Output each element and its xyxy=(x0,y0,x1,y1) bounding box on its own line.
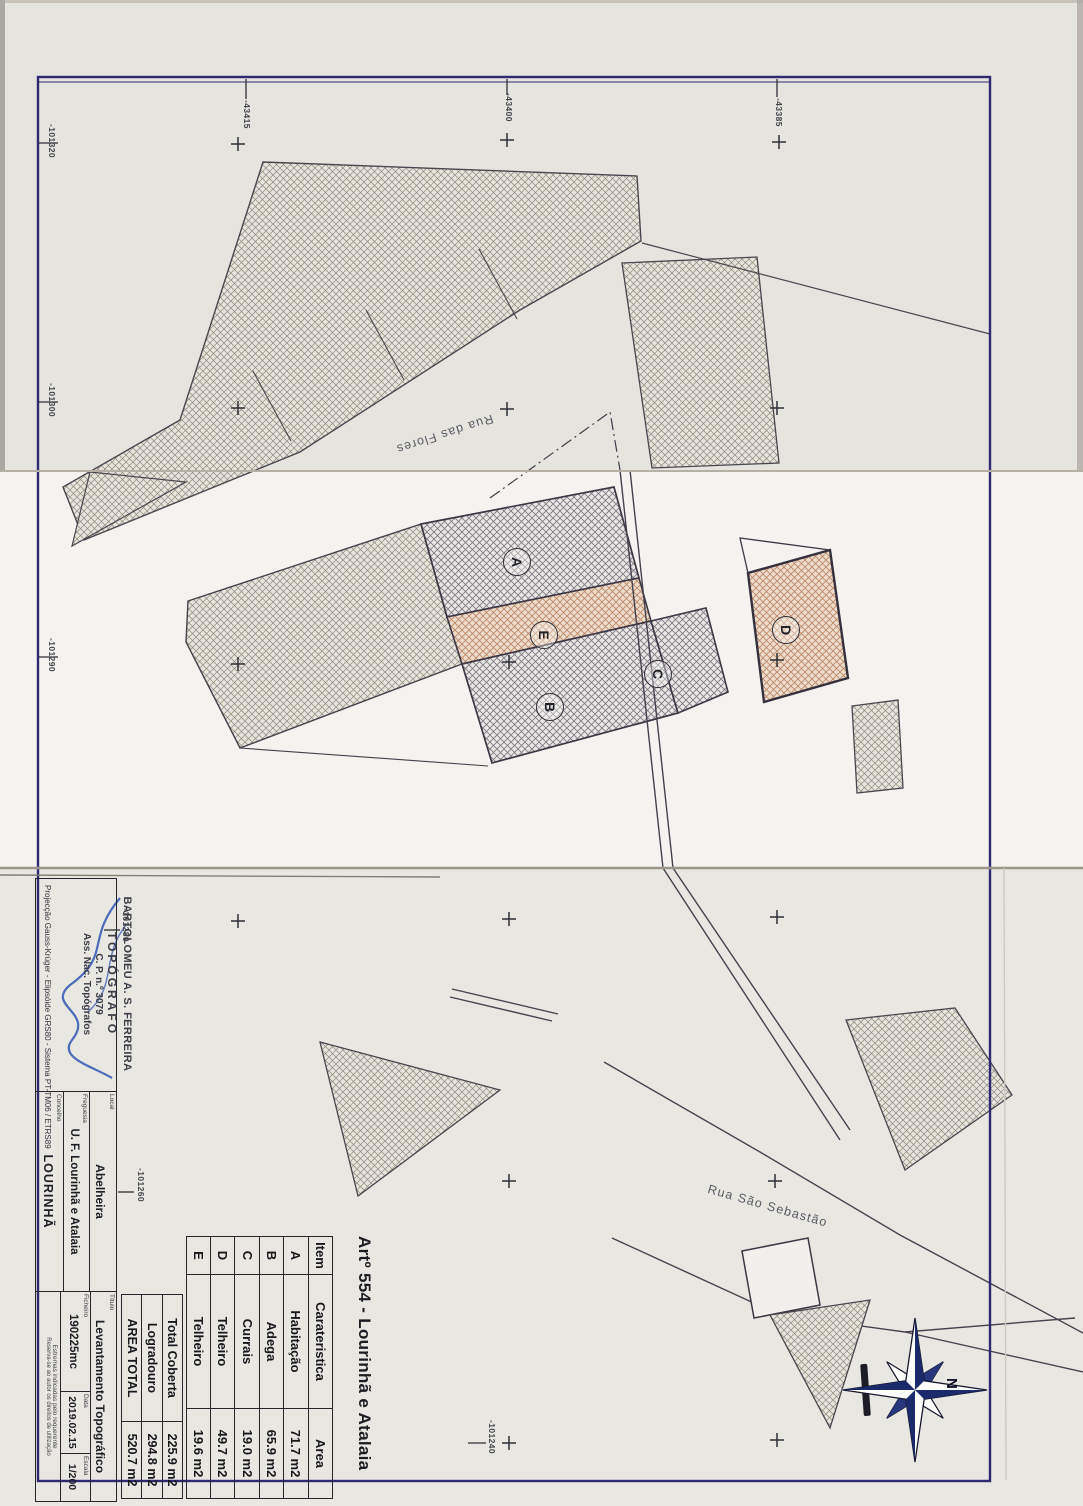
total-value: 520.7 m2 xyxy=(121,1422,141,1499)
titulo-label: Título xyxy=(108,1294,115,1310)
cell-item: D xyxy=(211,1237,235,1275)
location-section: Local Abelheira Freguesia U. F. Lourinhã… xyxy=(36,1091,116,1291)
cell-area: 65.9 m2 xyxy=(259,1409,283,1499)
concelho-value: LOURINHÃ xyxy=(41,1092,63,1291)
stamp-association: Ass. Nac. Topógrafos xyxy=(79,881,92,1087)
data-cell: Data 2019.02.15 xyxy=(61,1392,90,1454)
building-outlines xyxy=(421,487,903,793)
parcel-boundary-lower xyxy=(240,748,488,766)
cell-area: 71.7 m2 xyxy=(284,1409,308,1499)
building-label-A: A xyxy=(503,548,531,576)
building-label-D: D xyxy=(772,616,800,644)
cell-area: 19.0 m2 xyxy=(235,1409,259,1499)
axis-dash-dot-line xyxy=(490,412,620,498)
neighbor-small-building xyxy=(852,700,903,793)
titulo-row: Título Levantamento Topográfico xyxy=(90,1292,116,1501)
paper-edge-top xyxy=(0,0,1083,3)
grid-label-inner-3: -101240 xyxy=(486,1420,497,1464)
table-row: A Habitação 71.7 m2 xyxy=(284,1237,308,1499)
sheet-title: Artº 554 - Lourinhã e Atalaia xyxy=(338,1236,374,1486)
table-row: B Adega 65.9 m2 xyxy=(259,1237,283,1499)
local-label: Local xyxy=(108,1094,115,1110)
cell-area: 19.6 m2 xyxy=(186,1409,210,1499)
freguesia-row: Freguesia U. F. Lourinhã e Atalaia xyxy=(63,1092,90,1291)
neighbor-buildings-band xyxy=(63,162,641,546)
stamp-number: C. P. n.º 3079 xyxy=(92,881,105,1087)
col-header-area: Area xyxy=(308,1409,332,1499)
total-value: 225.9 m2 xyxy=(162,1422,182,1499)
grid-label-top-1: -43415 xyxy=(241,100,252,142)
note-reserva: Reserva-se ao autor os direitos de utili… xyxy=(45,1292,51,1501)
table-row: AREA TOTAL 520.7 m2 xyxy=(121,1295,141,1499)
cell-carateristica: Currais xyxy=(235,1275,259,1409)
freguesia-label: Freguesia xyxy=(82,1094,89,1123)
total-label: AREA TOTAL xyxy=(121,1295,141,1422)
cell-carateristica: Habitação xyxy=(284,1275,308,1409)
concelho-label: Concelho xyxy=(55,1094,62,1121)
data-label: Data xyxy=(82,1394,89,1408)
grid-label-inner-2: -101260 xyxy=(135,1168,146,1212)
neighbor-parcel-upper-right xyxy=(622,257,779,468)
small-structure-outline xyxy=(742,1238,820,1318)
title-block: BARTOLOMEU A. S. FERREIRA TOPÓGRAFO C. P… xyxy=(35,878,117,1502)
table-row: D Telheiro 49.7 m2 xyxy=(211,1237,235,1499)
grid-label-top-2: -43400 xyxy=(503,93,514,135)
areas-table-header: Item Carateristica Area xyxy=(308,1237,332,1499)
survey-drawing xyxy=(0,0,1083,1506)
stamp-section: BARTOLOMEU A. S. FERREIRA TOPÓGRAFO C. P… xyxy=(36,879,116,1091)
building-label-E: E xyxy=(530,621,558,649)
total-label: Logradouro xyxy=(142,1295,162,1422)
totals-table: Total Coberta 225.9 m2 Logradouro 294.8 … xyxy=(120,1294,183,1498)
compass-north-label: N xyxy=(944,1378,960,1398)
total-label: Total Coberta xyxy=(162,1295,182,1422)
compass-rose xyxy=(843,1318,987,1462)
building-label-B: B xyxy=(536,693,564,721)
file-date-scale-row: Ficheiro 190225mc Data 2019.02.15 Escala… xyxy=(60,1292,90,1501)
ficheiro-cell: Ficheiro 190225mc xyxy=(61,1292,90,1392)
meta-section: Título Levantamento Topográfico Ficheiro… xyxy=(36,1291,116,1501)
cell-area: 49.7 m2 xyxy=(211,1409,235,1499)
table-row: Logradouro 294.8 m2 xyxy=(142,1295,162,1499)
grid-label-top-3: -43385 xyxy=(773,98,784,140)
grid-label-left-2: -101300 xyxy=(46,383,57,427)
cell-carateristica: Telheiro xyxy=(211,1275,235,1409)
concelho-row: Concelho LOURINHÃ xyxy=(38,1092,64,1291)
areas-table: Item Carateristica Area A Habitação 71.7… xyxy=(183,1236,333,1498)
scanned-survey-sheet: Artº 554 - Lourinhã e Atalaia Item Carat… xyxy=(0,0,1083,1506)
note-estremas: Estremas indicadas pelo requerente xyxy=(51,1292,58,1501)
cell-item: A xyxy=(284,1237,308,1275)
col-header-item: Item xyxy=(308,1237,332,1275)
grid-label-inner-1: -101280 xyxy=(120,908,131,952)
notes-row: Estremas indicadas pelo requerente Reser… xyxy=(39,1292,60,1501)
neighbor-mass-left xyxy=(186,524,462,748)
col-header-carateristica: Carateristica xyxy=(308,1275,332,1409)
cell-item: E xyxy=(186,1237,210,1275)
cell-item: B xyxy=(259,1237,283,1275)
local-row: Local Abelheira xyxy=(90,1092,117,1291)
table-row: E Telheiro 19.6 m2 xyxy=(186,1237,210,1499)
building-label-C: C xyxy=(644,660,672,688)
grid-label-left-3: -101290 xyxy=(46,638,57,682)
ficheiro-label: Ficheiro xyxy=(82,1294,89,1317)
cell-carateristica: Adega xyxy=(259,1275,283,1409)
titulo-value: Levantamento Topográfico xyxy=(93,1292,116,1501)
stamp-role: TOPÓGRAFO xyxy=(104,881,119,1087)
hatched-triangle-lower xyxy=(770,1300,870,1428)
cell-item: C xyxy=(235,1237,259,1275)
paper-edge-left xyxy=(0,0,5,471)
paper-edge-right xyxy=(1077,0,1083,471)
hatched-triangle-left xyxy=(320,1042,500,1196)
grid-label-left-1: -101320 xyxy=(46,124,57,168)
table-row: C Currais 19.0 m2 xyxy=(235,1237,259,1499)
local-value: Abelheira xyxy=(93,1092,116,1291)
table-row: Total Coberta 225.9 m2 xyxy=(162,1295,182,1499)
escala-label: Escala xyxy=(82,1456,89,1476)
hatched-band-right xyxy=(846,1008,1012,1170)
total-value: 294.8 m2 xyxy=(142,1422,162,1499)
cell-carateristica: Telheiro xyxy=(186,1275,210,1409)
escala-cell: Escala 1/200 xyxy=(61,1454,90,1500)
